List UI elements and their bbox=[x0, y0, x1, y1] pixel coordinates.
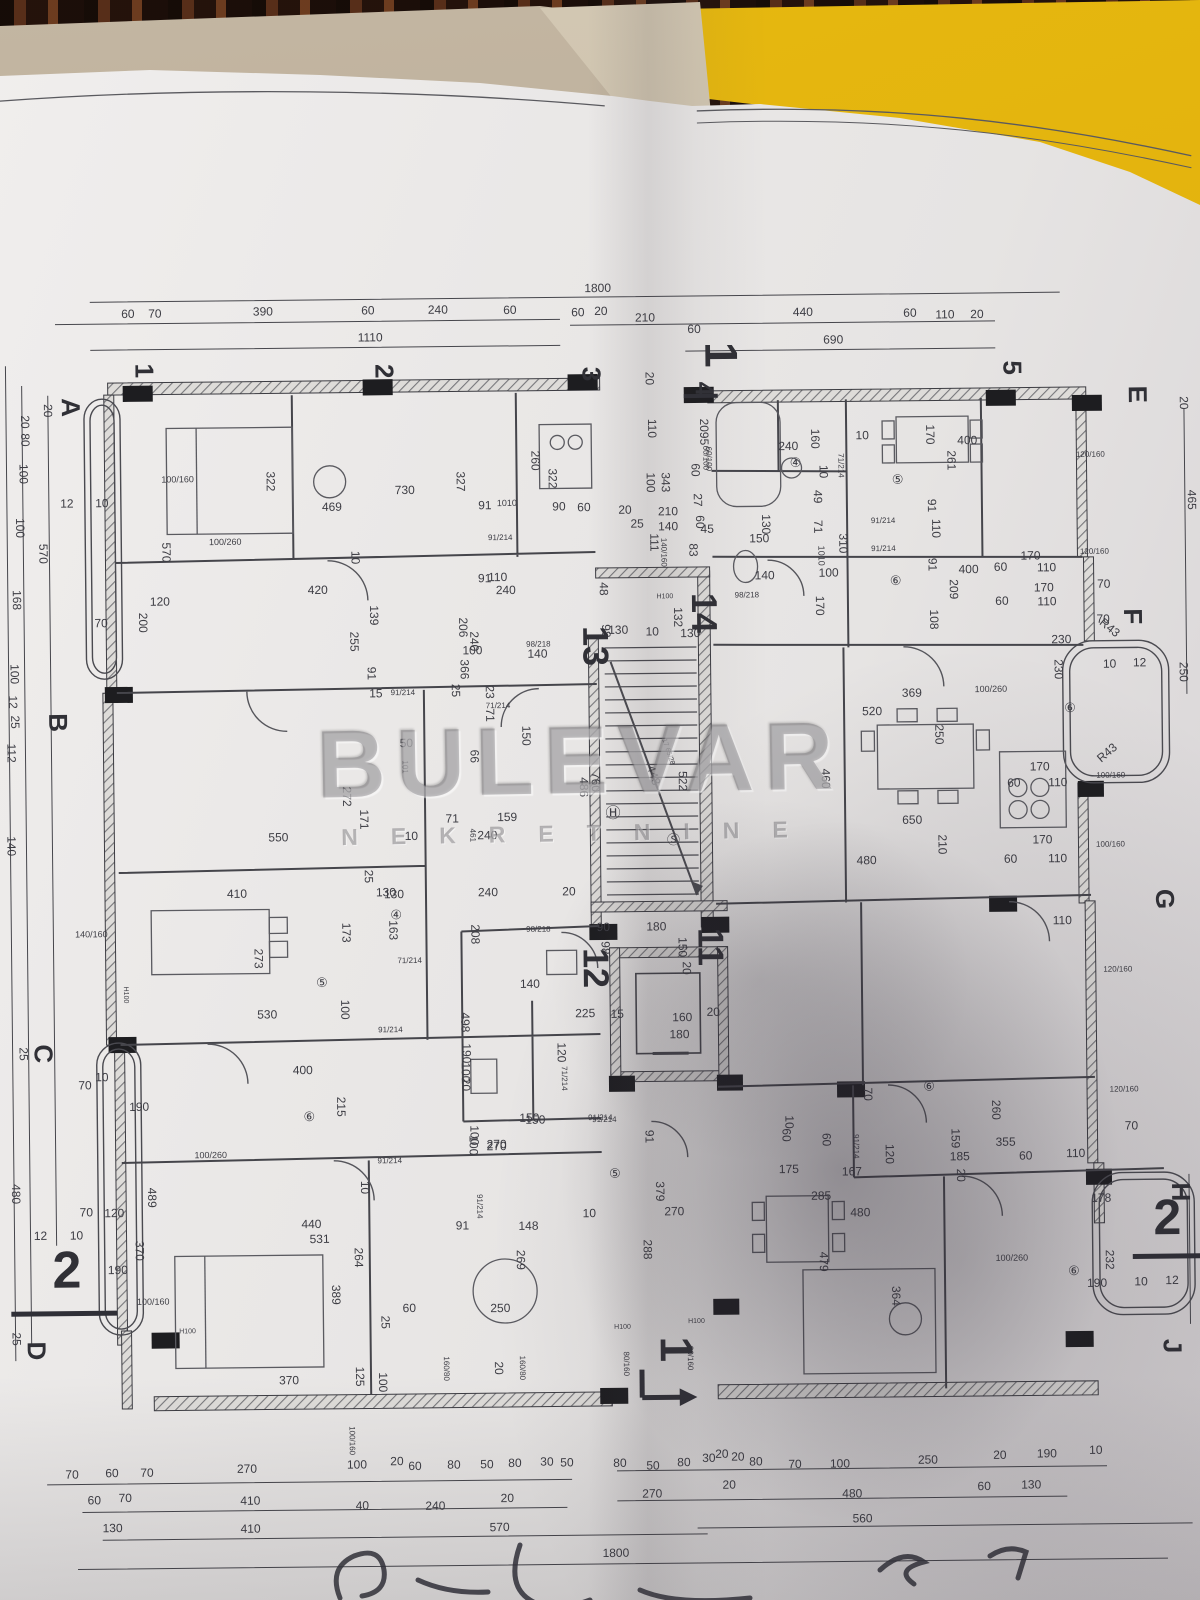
photographed-floor-plan: 1800607039060240601110602021044060110206… bbox=[0, 0, 1200, 1600]
photo-shadow-overlay bbox=[0, 0, 1200, 1600]
